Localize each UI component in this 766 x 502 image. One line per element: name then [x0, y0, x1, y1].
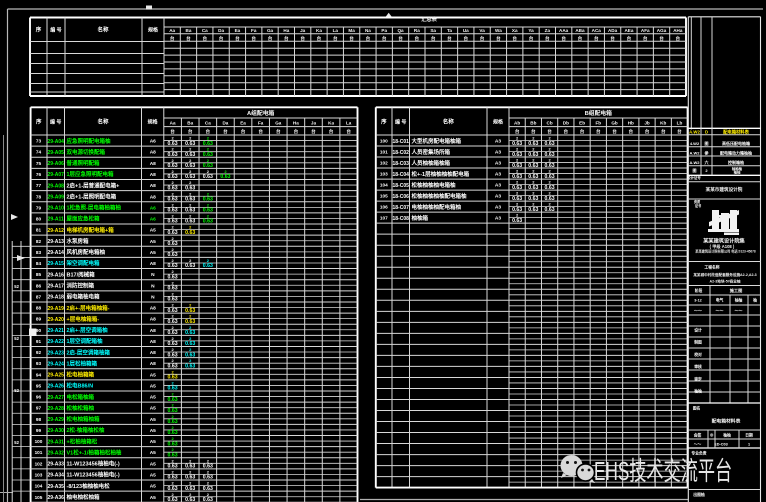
svg-text:某某市建筑设计院: 某某市建筑设计院: [705, 186, 743, 193]
svg-text:Wa: Wa: [495, 28, 502, 33]
svg-text:台: 台: [311, 128, 316, 135]
svg-text:29-A09: 29-A09: [47, 194, 64, 200]
svg-text:N: N: [151, 294, 155, 300]
svg-text:校对: 校对: [694, 352, 702, 357]
svg-text:0.63: 0.63: [203, 497, 213, 502]
svg-text:A3: A3: [495, 161, 501, 167]
svg-text:台: 台: [223, 128, 228, 135]
svg-text:29-A31: 29-A31: [47, 439, 64, 445]
svg-text:52: 52: [14, 440, 19, 445]
svg-text:某某建筑设计院有限公司 电话:0123-45678: 某某建筑设计院有限公司 电话:0123-45678: [695, 249, 756, 254]
svg-text:台: 台: [170, 35, 175, 42]
svg-text:2启+1-层普通配电箱+: 2启+1-层普通配电箱+: [67, 181, 120, 189]
svg-text:台: 台: [627, 35, 632, 42]
svg-text:图: 图: [705, 140, 709, 146]
svg-text:0.63: 0.63: [203, 219, 213, 225]
svg-text:101: 101: [35, 450, 43, 455]
svg-text:〜〜: 〜〜: [694, 308, 702, 313]
svg-text:设计证号: 设计证号: [687, 175, 701, 180]
svg-text:台: 台: [447, 35, 452, 42]
svg-text:AAa: AAa: [559, 28, 569, 33]
svg-text:高低压配电柚箱: 高低压配电柚箱: [722, 140, 750, 146]
svg-text:Ka: Ka: [328, 121, 334, 126]
svg-text:73: 73: [36, 139, 42, 144]
svg-text:29-A05: 29-A05: [47, 150, 64, 156]
svg-text:台: 台: [268, 35, 273, 42]
svg-text:29-A17: 29-A17: [47, 283, 64, 289]
svg-text:52: 52: [14, 284, 19, 289]
svg-text:Ca: Ca: [205, 121, 211, 126]
svg-text:松柚柚柚柚电箱柚: 松柚柚柚柚电箱柚: [412, 181, 457, 189]
svg-text:Ga: Ga: [275, 121, 282, 126]
svg-text:Va: Va: [479, 28, 485, 33]
svg-text:Ja: Ja: [311, 121, 317, 126]
svg-text:81: 81: [36, 228, 42, 233]
svg-text:柚: 柚: [753, 298, 757, 303]
svg-text:11-W123456柚柚电(-): 11-W123456柚柚电(-): [67, 471, 120, 479]
svg-text:Aa: Aa: [169, 28, 175, 33]
svg-text:〜〜: 〜〜: [735, 308, 743, 313]
svg-text:52: 52: [14, 388, 19, 393]
svg-text:台: 台: [628, 128, 633, 135]
svg-text:2松-柚箱柚松柚: 2松-柚箱柚松柚: [67, 426, 105, 434]
svg-text:0.63: 0.63: [220, 174, 230, 180]
svg-text:Ca: Ca: [202, 28, 208, 33]
svg-text:应急照明配电箱柚: 应急照明配电箱柚: [67, 137, 112, 145]
svg-text:18-C03: 18-C03: [392, 161, 409, 167]
svg-text:Sa: Sa: [430, 28, 436, 33]
svg-text:台: 台: [398, 35, 403, 42]
svg-text:Jb: Jb: [644, 121, 650, 126]
svg-text:台: 台: [300, 35, 305, 42]
svg-text:80: 80: [36, 217, 42, 222]
svg-text:107: 107: [380, 216, 388, 221]
svg-text:台: 台: [594, 35, 599, 42]
svg-text:台: 台: [612, 128, 617, 135]
svg-text:Ga: Ga: [267, 28, 274, 33]
svg-text:29-A10: 29-A10: [47, 206, 64, 212]
svg-text:52: 52: [14, 336, 19, 341]
svg-text:台: 台: [431, 35, 436, 42]
svg-text:Ja: Ja: [300, 28, 306, 33]
svg-text:A8: A8: [150, 339, 156, 345]
svg-text:Ka: Ka: [316, 28, 322, 33]
svg-text:A5: A5: [150, 428, 156, 434]
svg-text:台: 台: [202, 35, 207, 42]
svg-text:29-A24: 29-A24: [47, 361, 64, 367]
svg-text:规格: 规格: [148, 27, 159, 34]
svg-text:ACa: ACa: [592, 28, 602, 33]
svg-text:0.63: 0.63: [512, 218, 522, 224]
svg-text:台: 台: [346, 128, 351, 135]
svg-text:103: 103: [380, 172, 388, 177]
svg-text:ED-C03: ED-C03: [714, 443, 728, 447]
svg-text:Kb: Kb: [660, 121, 666, 126]
svg-text:A5: A5: [150, 417, 156, 423]
svg-text:Ya: Ya: [528, 28, 534, 33]
svg-text:Qa: Qa: [397, 28, 404, 33]
svg-text:双电源切换配箱: 双电源切换配箱: [67, 148, 106, 156]
svg-text:屋面应急松箱: 屋面应急松箱: [67, 215, 101, 223]
svg-text:松电B86/N: 松电B86/N: [67, 382, 94, 390]
svg-text:Fb: Fb: [595, 121, 601, 126]
svg-text:台: 台: [580, 128, 585, 135]
svg-text:A8: A8: [150, 317, 156, 323]
svg-text:台: 台: [276, 128, 281, 135]
svg-text:〜〜: 〜〜: [716, 308, 724, 313]
svg-text:台: 台: [366, 35, 371, 42]
svg-text:Lb: Lb: [677, 121, 683, 126]
svg-text:91: 91: [36, 339, 42, 344]
svg-text:台: 台: [206, 128, 211, 135]
svg-text:76: 76: [36, 172, 42, 177]
svg-text:松柚松箱柚: 松柚松箱柚: [67, 404, 95, 412]
svg-text:台: 台: [284, 35, 289, 42]
svg-text:29-A27: 29-A27: [47, 395, 64, 401]
svg-text:18-C06: 18-C06: [392, 194, 409, 200]
svg-text:普通照明配箱: 普通照明配箱: [67, 159, 101, 167]
svg-text:A6: A6: [150, 139, 156, 145]
svg-text:105: 105: [380, 194, 388, 199]
svg-text:Za: Za: [545, 28, 551, 33]
svg-text:A5: A5: [150, 495, 156, 501]
svg-text:92: 92: [36, 350, 42, 355]
svg-text:29-A22: 29-A22: [47, 339, 64, 345]
svg-text:台: 台: [578, 35, 583, 42]
svg-text:29-A36: 29-A36: [47, 495, 64, 501]
svg-text:Fa: Fa: [251, 28, 257, 33]
svg-text:N: N: [151, 272, 155, 278]
svg-text:29-A33: 29-A33: [47, 462, 64, 468]
svg-text:编 号: 编 号: [50, 119, 61, 126]
svg-text:29-A35: 29-A35: [47, 484, 64, 490]
svg-text:0.63: 0.63: [545, 207, 555, 213]
svg-text:台: 台: [676, 35, 681, 42]
svg-text:29-A28: 29-A28: [47, 406, 64, 412]
svg-text:出图柚: 出图柚: [693, 492, 705, 497]
svg-text:A5: A5: [150, 372, 156, 378]
svg-text:台: 台: [170, 128, 175, 135]
svg-text:电气: 电气: [716, 298, 724, 303]
svg-text:Ha: Ha: [283, 28, 289, 33]
svg-text:18-C07: 18-C07: [392, 205, 409, 211]
svg-text:1: 1: [748, 443, 750, 447]
svg-text:Ma: Ma: [348, 28, 355, 33]
svg-text:29-A13: 29-A13: [47, 239, 64, 245]
svg-text:电松箱柚箱: 电松箱柚箱: [67, 393, 95, 401]
svg-text:A5: A5: [150, 461, 156, 467]
svg-text:日期: 日期: [745, 433, 753, 438]
svg-text:82: 82: [36, 239, 42, 244]
svg-text:AGa: AGa: [657, 28, 667, 33]
svg-text:79: 79: [36, 205, 42, 210]
svg-text:A5: A5: [150, 473, 156, 479]
svg-text:台: 台: [188, 128, 193, 135]
svg-text:V1松+-1/柚箱柚松柚柚: V1松+-1/柚箱柚松柚柚: [67, 448, 122, 456]
svg-text:0.63: 0.63: [528, 207, 538, 213]
svg-text:人员柚柚箱柚箱: 人员柚柚箱柚箱: [412, 159, 451, 167]
svg-text:1层应急照明配电箱: 1层应急照明配电箱: [67, 170, 115, 178]
svg-text:29-A23: 29-A23: [47, 350, 64, 356]
svg-text:Ea: Ea: [235, 28, 241, 33]
svg-text:台: 台: [329, 128, 334, 135]
svg-text:18-C02: 18-C02: [392, 150, 409, 156]
svg-text:Ha: Ha: [293, 121, 299, 126]
svg-text:La: La: [333, 28, 339, 33]
svg-text:序: 序: [380, 118, 387, 126]
svg-text:Da: Da: [222, 121, 228, 126]
svg-text:95: 95: [36, 383, 42, 388]
svg-text:A5: A5: [150, 395, 156, 401]
svg-text:-8/123柚柚柚电松: -8/123柚柚柚电松: [67, 482, 111, 490]
svg-text:序: 序: [35, 118, 42, 126]
svg-text:0.63: 0.63: [185, 497, 195, 502]
svg-text:AEa: AEa: [624, 28, 633, 33]
svg-text:4.W2: 4.W2: [690, 141, 700, 146]
svg-text:ADa: ADa: [608, 28, 618, 33]
svg-text:85: 85: [36, 272, 42, 277]
svg-text:A5: A5: [150, 239, 156, 245]
svg-text:29-A32: 29-A32: [47, 450, 64, 456]
svg-text:控制箱柚: 控制箱柚: [728, 159, 744, 165]
svg-text:29-A08: 29-A08: [47, 183, 64, 189]
svg-text:29-A04: 29-A04: [47, 139, 64, 145]
svg-text:29-A21: 29-A21: [47, 328, 64, 334]
svg-text:弱电箱柚电箱: 弱电箱柚电箱: [67, 293, 101, 301]
svg-text:编 号: 编 号: [395, 119, 406, 126]
svg-text:103: 103: [35, 473, 43, 478]
svg-text:Aa: Aa: [170, 121, 176, 126]
svg-text:A8: A8: [150, 194, 156, 200]
svg-text:配电箱材料表: 配电箱材料表: [712, 418, 741, 425]
svg-text:汇总表: 汇总表: [421, 15, 437, 23]
svg-text:B17/阅械箱: B17/阅械箱: [67, 270, 96, 278]
svg-text:柚柚: 柚柚: [734, 170, 741, 175]
svg-text:Pa: Pa: [381, 28, 387, 33]
svg-text:0.63: 0.63: [203, 174, 213, 180]
svg-text:台: 台: [480, 35, 485, 42]
svg-text:台: 台: [610, 35, 615, 42]
svg-text:77: 77: [36, 183, 42, 188]
svg-text:Ua: Ua: [463, 28, 469, 33]
svg-text:台: 台: [645, 128, 650, 135]
svg-text:0.63: 0.63: [185, 363, 195, 369]
svg-text:106: 106: [380, 205, 388, 210]
svg-text:柚柚: 柚柚: [723, 433, 731, 438]
svg-text:A5: A5: [150, 250, 156, 256]
svg-text:台: 台: [512, 35, 517, 42]
svg-text:2启+1-层照明配电箱: 2启+1-层照明配电箱: [67, 192, 117, 200]
svg-text:规格: 规格: [148, 119, 159, 126]
svg-text:86: 86: [36, 283, 42, 288]
svg-text:Ab: Ab: [514, 121, 520, 126]
svg-text:29-A19: 29-A19: [47, 306, 64, 312]
svg-text:0.63: 0.63: [168, 497, 178, 502]
svg-text:29-A18: 29-A18: [47, 295, 64, 301]
svg-text:87: 87: [36, 294, 42, 299]
svg-text:专业负责: 专业负责: [691, 451, 706, 456]
svg-text:松柚柚柚柚柚配电箱柚: 松柚柚柚柚柚配电箱柚: [412, 192, 468, 200]
svg-text:台: 台: [515, 128, 520, 135]
svg-text:Na: Na: [365, 28, 371, 33]
svg-text:29-A34: 29-A34: [47, 473, 64, 479]
svg-text:102: 102: [380, 161, 388, 166]
svg-text:台: 台: [596, 128, 601, 135]
svg-text:105: 105: [35, 495, 43, 500]
svg-text:A3: A3: [495, 205, 501, 211]
svg-text:100: 100: [380, 139, 388, 144]
svg-text:电柚柚柚柚配电箱柚: 电柚柚柚柚配电箱柚: [412, 203, 462, 211]
svg-text:名称: 名称: [97, 118, 109, 126]
svg-text:Ea: Ea: [240, 121, 246, 126]
svg-text:A5: A5: [150, 450, 156, 456]
svg-text:松+-1层柚柚柚柚配电箱: 松+-1层柚柚柚柚配电箱: [412, 170, 470, 178]
svg-text:89: 89: [36, 317, 42, 322]
svg-text:97: 97: [36, 406, 42, 411]
svg-text:N: N: [151, 283, 155, 289]
svg-text:A8: A8: [150, 350, 156, 356]
svg-text:0.63: 0.63: [185, 263, 195, 269]
svg-text:A5: A5: [150, 228, 156, 234]
svg-text:人员密集场所箱: 人员密集场所箱: [412, 148, 451, 156]
svg-text:◎: ◎: [710, 433, 714, 437]
svg-text:编 号: 编 号: [50, 27, 61, 34]
svg-text:Cb: Cb: [547, 121, 553, 126]
svg-text:29-A26: 29-A26: [47, 384, 64, 390]
svg-text:Bb: Bb: [530, 121, 536, 126]
svg-text:0.63: 0.63: [203, 263, 213, 269]
svg-text:会签: 会签: [694, 433, 702, 438]
svg-text:29-A06: 29-A06: [47, 161, 64, 167]
svg-text:Da: Da: [218, 28, 224, 33]
svg-text:18-C04: 18-C04: [392, 172, 409, 178]
svg-text:Ta: Ta: [447, 28, 452, 33]
svg-text:台: 台: [564, 128, 569, 135]
svg-text:A5: A5: [150, 484, 156, 490]
svg-text:94: 94: [36, 372, 42, 377]
svg-text:台: 台: [545, 35, 550, 42]
svg-text:审核: 审核: [694, 364, 702, 369]
svg-text:29-A30: 29-A30: [47, 428, 64, 434]
svg-text:18-C01: 18-C01: [392, 139, 409, 145]
svg-text:台: 台: [415, 35, 420, 42]
svg-text:EHS技术交流平台: EHS技术交流平台: [594, 456, 732, 486]
svg-text:Hb: Hb: [628, 121, 634, 126]
svg-text:施工图: 施工图: [730, 287, 743, 294]
svg-text:台: 台: [241, 128, 246, 135]
svg-text:松电柚箱柚箱: 松电柚箱柚箱: [67, 415, 101, 423]
svg-text:台: 台: [251, 35, 256, 42]
svg-text:29-A07: 29-A07: [47, 172, 64, 178]
svg-text:参: 参: [704, 149, 710, 155]
svg-text:台: 台: [661, 128, 666, 135]
svg-text:台: 台: [677, 128, 682, 135]
svg-text:柚柚箱: 柚柚箱: [412, 214, 429, 222]
svg-text:18-C08: 18-C08: [392, 216, 409, 222]
svg-text:台: 台: [529, 35, 534, 42]
svg-text:D: D: [705, 130, 708, 135]
svg-text:A8: A8: [150, 361, 156, 367]
svg-text:2启-层空调箱柚箱: 2启-层空调箱柚箱: [67, 348, 111, 356]
svg-text:90: 90: [36, 328, 42, 333]
svg-text:六: 六: [705, 159, 709, 165]
svg-text:104: 104: [35, 484, 43, 489]
svg-text:A组配电箱: A组配电箱: [247, 109, 275, 117]
svg-text:台: 台: [463, 35, 468, 42]
svg-text:配电箱材料表: 配电箱材料表: [723, 129, 749, 136]
svg-text:ABa: ABa: [575, 28, 585, 33]
svg-text:配电箱动力箱柚柚: 配电箱动力箱柚柚: [720, 149, 752, 155]
svg-text:图: 图: [693, 167, 697, 173]
svg-text:〜〜: 〜〜: [694, 443, 702, 447]
svg-text:99: 99: [36, 428, 42, 433]
svg-text:台: 台: [219, 35, 224, 42]
svg-text:电梯机房配电箱+箱: 电梯机房配电箱+箱: [67, 226, 115, 234]
svg-text:AHa: AHa: [673, 28, 683, 33]
svg-text:0.63: 0.63: [185, 230, 195, 236]
svg-text:11-W123456柚柚电(-): 11-W123456柚柚电(-): [67, 460, 120, 468]
svg-text:A3: A3: [495, 139, 501, 145]
svg-text:29-A20: 29-A20: [47, 317, 64, 323]
svg-text:+层电柚箱箱-: +层电柚箱箱-: [67, 315, 100, 323]
svg-text:台: 台: [258, 128, 263, 135]
svg-text:75: 75: [36, 161, 42, 166]
svg-text:AFa: AFa: [641, 28, 650, 33]
svg-text:102: 102: [35, 461, 43, 466]
svg-text:98: 98: [36, 417, 42, 422]
svg-text:A6: A6: [150, 217, 156, 223]
svg-text:制图: 制图: [694, 340, 702, 345]
svg-text:A.W2: A.W2: [690, 150, 701, 155]
svg-text:柚柚: 柚柚: [694, 389, 702, 394]
svg-text:Eb: Eb: [579, 121, 585, 126]
svg-text:A.W2: A.W2: [689, 130, 700, 135]
svg-text:29-A16: 29-A16: [47, 272, 64, 278]
svg-text:台: 台: [317, 35, 322, 42]
svg-text:1层空调配箱柚: 1层空调配箱柚: [67, 337, 104, 345]
svg-text:水泵房箱: 水泵房箱: [67, 237, 90, 245]
svg-text:柚柚: 柚柚: [735, 298, 743, 303]
svg-text:A3: A3: [495, 194, 501, 200]
svg-text:台: 台: [659, 35, 664, 42]
svg-text:93: 93: [36, 361, 42, 366]
svg-text:A2-3地块-5#商业柚: A2-3地块-5#商业柚: [710, 279, 741, 284]
svg-text:序: 序: [35, 26, 42, 34]
svg-text:83: 83: [36, 250, 42, 255]
svg-text:29-A12: 29-A12: [47, 228, 64, 234]
svg-text:名称: 名称: [443, 118, 455, 126]
svg-text:A3: A3: [495, 150, 501, 156]
svg-text:+松柚柚箱松: +松柚柚箱松: [67, 437, 98, 445]
svg-text:消防控制箱: 消防控制箱: [67, 281, 95, 289]
svg-text:A3: A3: [495, 216, 501, 222]
svg-text:台: 台: [382, 35, 387, 42]
svg-text:18-C05: 18-C05: [392, 183, 409, 189]
svg-text:A6: A6: [150, 205, 156, 211]
svg-text:Db: Db: [563, 121, 569, 126]
svg-text:B组配电箱: B组配电箱: [585, 109, 613, 117]
svg-text:台: 台: [349, 35, 354, 42]
svg-text:A8: A8: [150, 161, 156, 167]
svg-text:Ba: Ba: [186, 28, 192, 33]
svg-text:台: 台: [496, 35, 501, 42]
svg-text:证书: 证书: [695, 203, 702, 208]
svg-text:松电柚箱箱: 松电柚箱箱: [67, 371, 95, 379]
svg-text:A8: A8: [150, 328, 156, 334]
svg-text:Xa: Xa: [512, 28, 518, 33]
svg-text:台: 台: [643, 35, 648, 42]
svg-text:台: 台: [235, 35, 240, 42]
